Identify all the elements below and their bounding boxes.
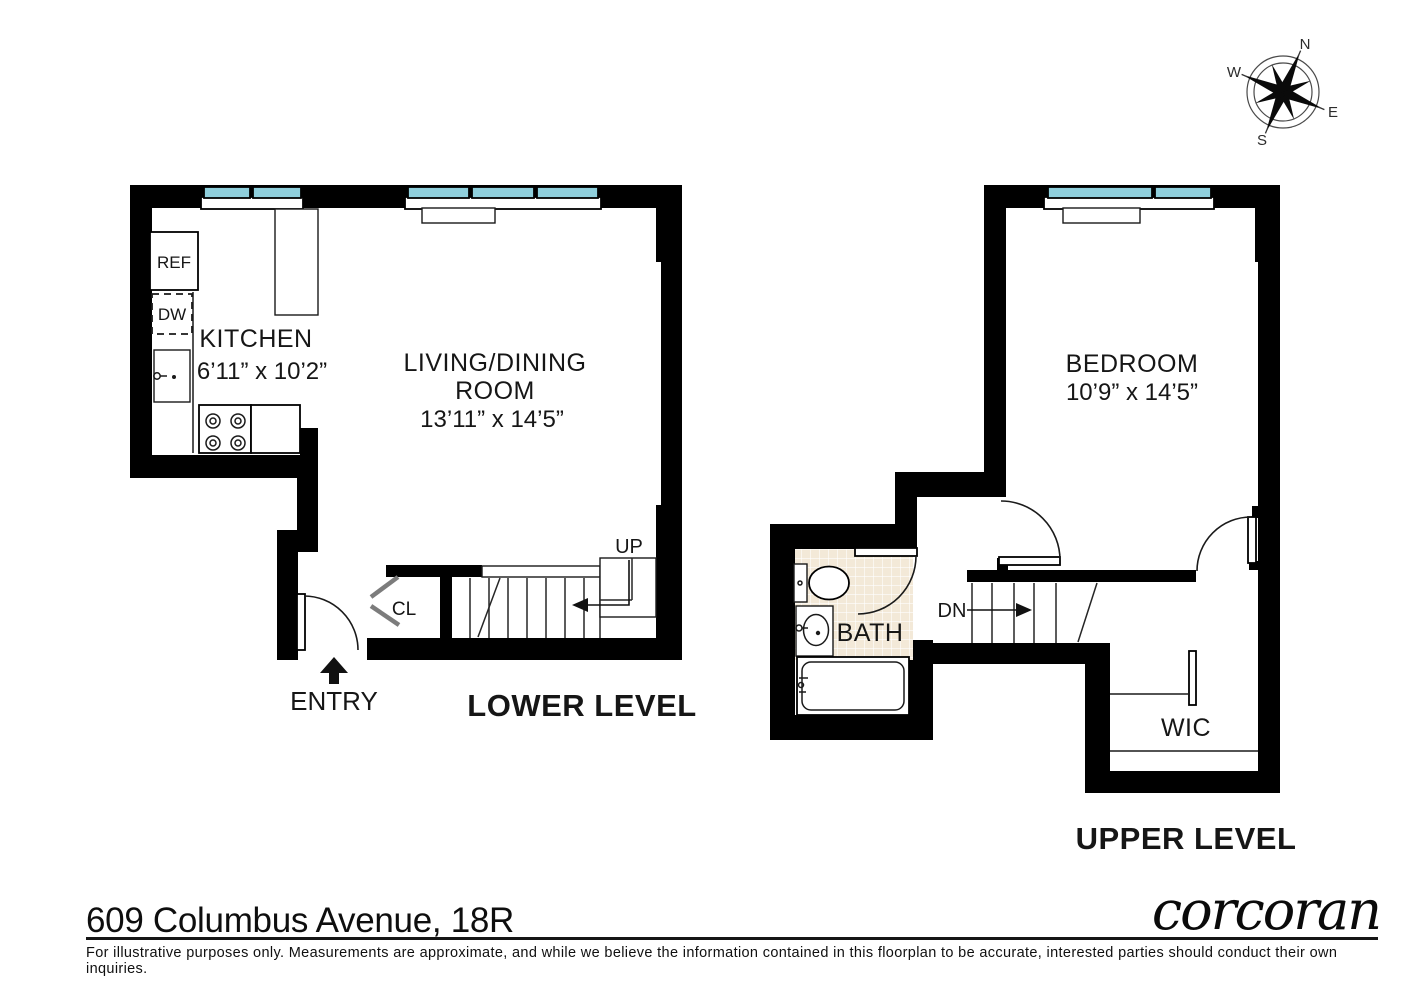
upper-level-title: UPPER LEVEL bbox=[1076, 821, 1297, 856]
disclaimer-text: For illustrative purposes only. Measurem… bbox=[86, 945, 1382, 977]
living-dining-area: LIVING/DINING ROOM 13’11” x 14’5” bbox=[404, 349, 587, 433]
upper-windows bbox=[1044, 187, 1214, 223]
bedroom-window bbox=[1155, 187, 1211, 198]
stair-landing bbox=[600, 558, 656, 617]
stair-header bbox=[482, 566, 600, 577]
compass-e-label: E bbox=[1328, 104, 1338, 121]
entry-door-swing bbox=[304, 596, 358, 650]
stove bbox=[199, 405, 251, 453]
stairs-down: DN bbox=[938, 583, 1097, 643]
living-window bbox=[408, 187, 469, 198]
dn-label: DN bbox=[938, 600, 967, 622]
entry: ENTRY bbox=[290, 594, 378, 716]
kitchen-counter bbox=[251, 405, 300, 453]
compass-n-label: N bbox=[1300, 36, 1311, 53]
walk-in-closet: WIC bbox=[1110, 651, 1258, 751]
living-label-line2: ROOM bbox=[455, 377, 535, 405]
footer-divider bbox=[86, 937, 1378, 940]
lower-level-title: LOWER LEVEL bbox=[467, 688, 696, 723]
bedroom-area: BEDROOM 10’9” x 14’5” bbox=[999, 350, 1256, 571]
wic-jamb bbox=[1189, 651, 1196, 705]
entry-door bbox=[297, 594, 305, 650]
floorplan-canvas: REF DW KITCHEN 6’11” x 10’2” bbox=[0, 0, 1414, 1000]
bedroom-door bbox=[999, 557, 1060, 565]
kitchen-sink bbox=[154, 350, 190, 402]
kitchen-window bbox=[204, 187, 250, 198]
bath-door bbox=[855, 548, 917, 556]
entry-arrow-stem bbox=[329, 671, 339, 684]
compass-s-label: S bbox=[1257, 132, 1267, 149]
closet-label: CL bbox=[392, 599, 416, 620]
refrigerator-label: REF bbox=[157, 253, 191, 272]
bedroom-label: BEDROOM bbox=[1066, 350, 1199, 378]
kitchen-area: REF DW KITCHEN 6’11” x 10’2” bbox=[150, 209, 327, 453]
kitchen-label: KITCHEN bbox=[199, 325, 312, 353]
living-label-line1: LIVING/DINING bbox=[404, 349, 587, 377]
compass-rose: N E S W bbox=[1227, 36, 1338, 149]
bedroom-window bbox=[1048, 187, 1152, 198]
property-address: 609 Columbus Avenue, 18R bbox=[86, 901, 514, 941]
stair-treads bbox=[972, 583, 1097, 643]
living-window bbox=[472, 187, 534, 198]
wic-label: WIC bbox=[1161, 714, 1211, 742]
up-arrowhead-icon bbox=[572, 598, 588, 612]
upper-level-plan: BEDROOM 10’9” x 14’5” bbox=[770, 185, 1296, 856]
compass-w-label: W bbox=[1227, 64, 1242, 81]
kitchen-dims: 6’11” x 10’2” bbox=[197, 358, 327, 385]
bath-label: BATH bbox=[837, 619, 904, 647]
bedroom-dims: 10’9” x 14’5” bbox=[1066, 379, 1198, 406]
entry-label: ENTRY bbox=[290, 686, 378, 716]
bathroom-sink bbox=[796, 606, 833, 656]
closet: CL bbox=[371, 577, 416, 625]
lower-level-plan: REF DW KITCHEN 6’11” x 10’2” bbox=[130, 185, 697, 723]
toilet-fixture bbox=[794, 564, 849, 602]
wic-door bbox=[1248, 517, 1256, 563]
kitchen-peninsula bbox=[275, 209, 318, 315]
living-dims: 13’11” x 14’5” bbox=[420, 406, 564, 433]
radiator bbox=[422, 208, 495, 223]
bathroom: BATH bbox=[794, 548, 917, 715]
radiator bbox=[1063, 208, 1140, 223]
entry-arrow-icon bbox=[320, 657, 348, 673]
bedroom-door-swing bbox=[1001, 501, 1060, 560]
living-window bbox=[537, 187, 598, 198]
wic-door-swing bbox=[1197, 517, 1251, 571]
up-label: UP bbox=[615, 536, 643, 558]
brand-logo: corcoran bbox=[1152, 884, 1380, 938]
stairs-up: UP bbox=[470, 536, 656, 638]
dn-arrowhead-icon bbox=[1016, 603, 1032, 617]
bathtub bbox=[797, 657, 909, 715]
dishwasher-label: DW bbox=[158, 305, 186, 324]
closet-door bbox=[371, 577, 398, 597]
kitchen-window bbox=[253, 187, 301, 198]
